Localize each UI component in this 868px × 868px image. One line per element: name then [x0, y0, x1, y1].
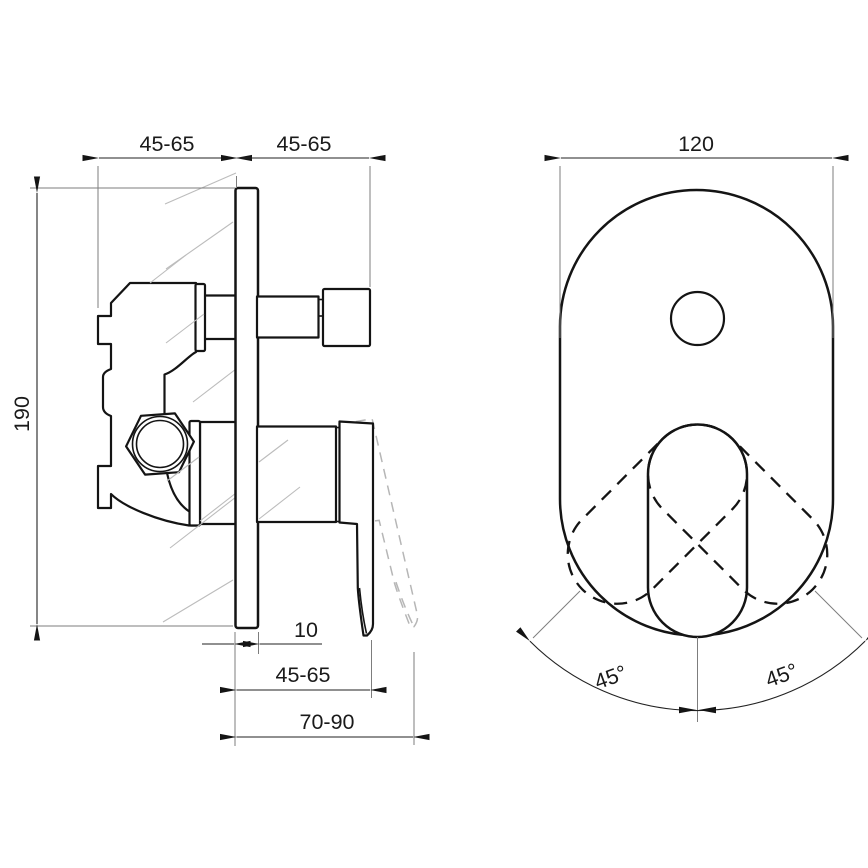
dim-label-top-left: 45-65: [140, 132, 195, 156]
wall-section-bar: [236, 188, 259, 628]
dim-label-angle-left: 45°: [591, 661, 630, 695]
outlet-pipe-cap: [323, 289, 370, 346]
angle-arrow-left: [679, 707, 697, 713]
dim-label-bottom-total: 70-90: [300, 710, 355, 734]
dim-bottom-depth: 45-65: [237, 640, 372, 698]
dim-top-left: 45-65: [98, 132, 237, 308]
drawing-canvas: 45-65 45-65 190 10 45-65: [0, 0, 868, 868]
upper-pipe-stub: [204, 296, 236, 340]
cartridge-stub: [200, 422, 236, 524]
side-view: 45-65 45-65 190 10 45-65: [10, 132, 420, 746]
dim-label-front-width: 120: [678, 132, 714, 156]
valve-body: [98, 283, 196, 526]
front-view: 120 45° 45°: [530, 132, 865, 722]
lever-handle-front: [648, 425, 747, 638]
dim-label-plate-thickness: 10: [294, 618, 318, 642]
cartridge-sleeve: [257, 427, 336, 523]
lever-handle-side: [340, 422, 374, 636]
outlet-pipe: [257, 297, 319, 338]
technical-drawing: 45-65 45-65 190 10 45-65: [0, 0, 868, 868]
dim-label-height: 190: [10, 396, 34, 432]
dim-label-top-right: 45-65: [277, 132, 332, 156]
diverter-button: [671, 292, 724, 345]
lever-handle-side-outline: [340, 422, 374, 636]
dim-label-angle-right: 45°: [762, 659, 801, 693]
dim-label-bottom-depth: 45-65: [276, 663, 331, 687]
angle-arrow-right: [699, 707, 717, 713]
